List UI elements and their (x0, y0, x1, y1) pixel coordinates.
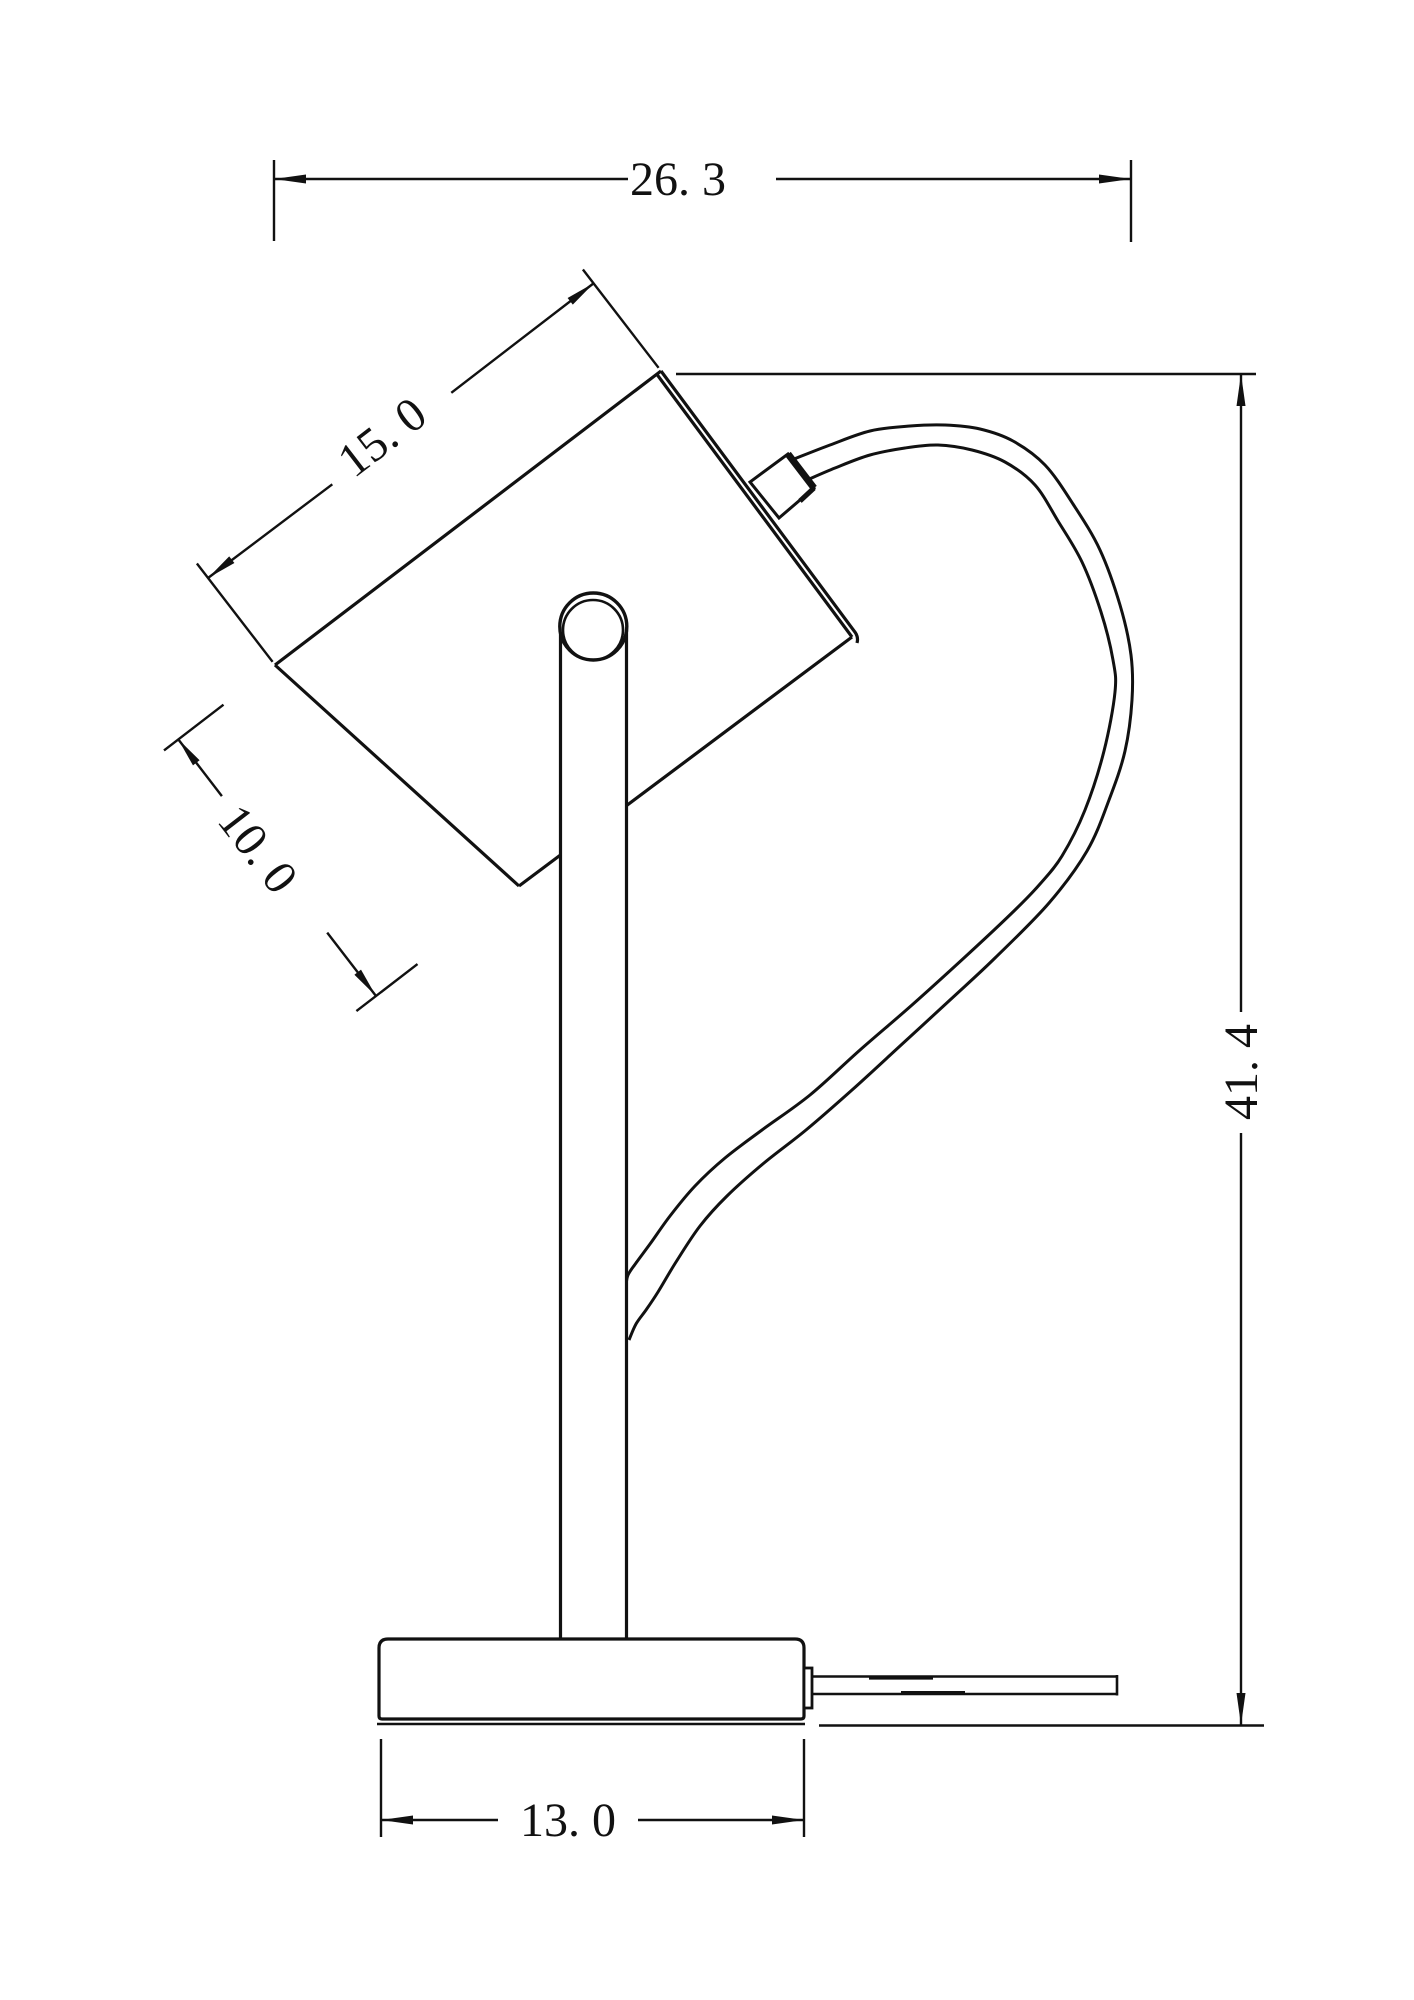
svg-text:26. 3: 26. 3 (630, 153, 726, 206)
svg-text:13. 0: 13. 0 (520, 1794, 616, 1847)
svg-text:41. 4: 41. 4 (1215, 1024, 1268, 1120)
